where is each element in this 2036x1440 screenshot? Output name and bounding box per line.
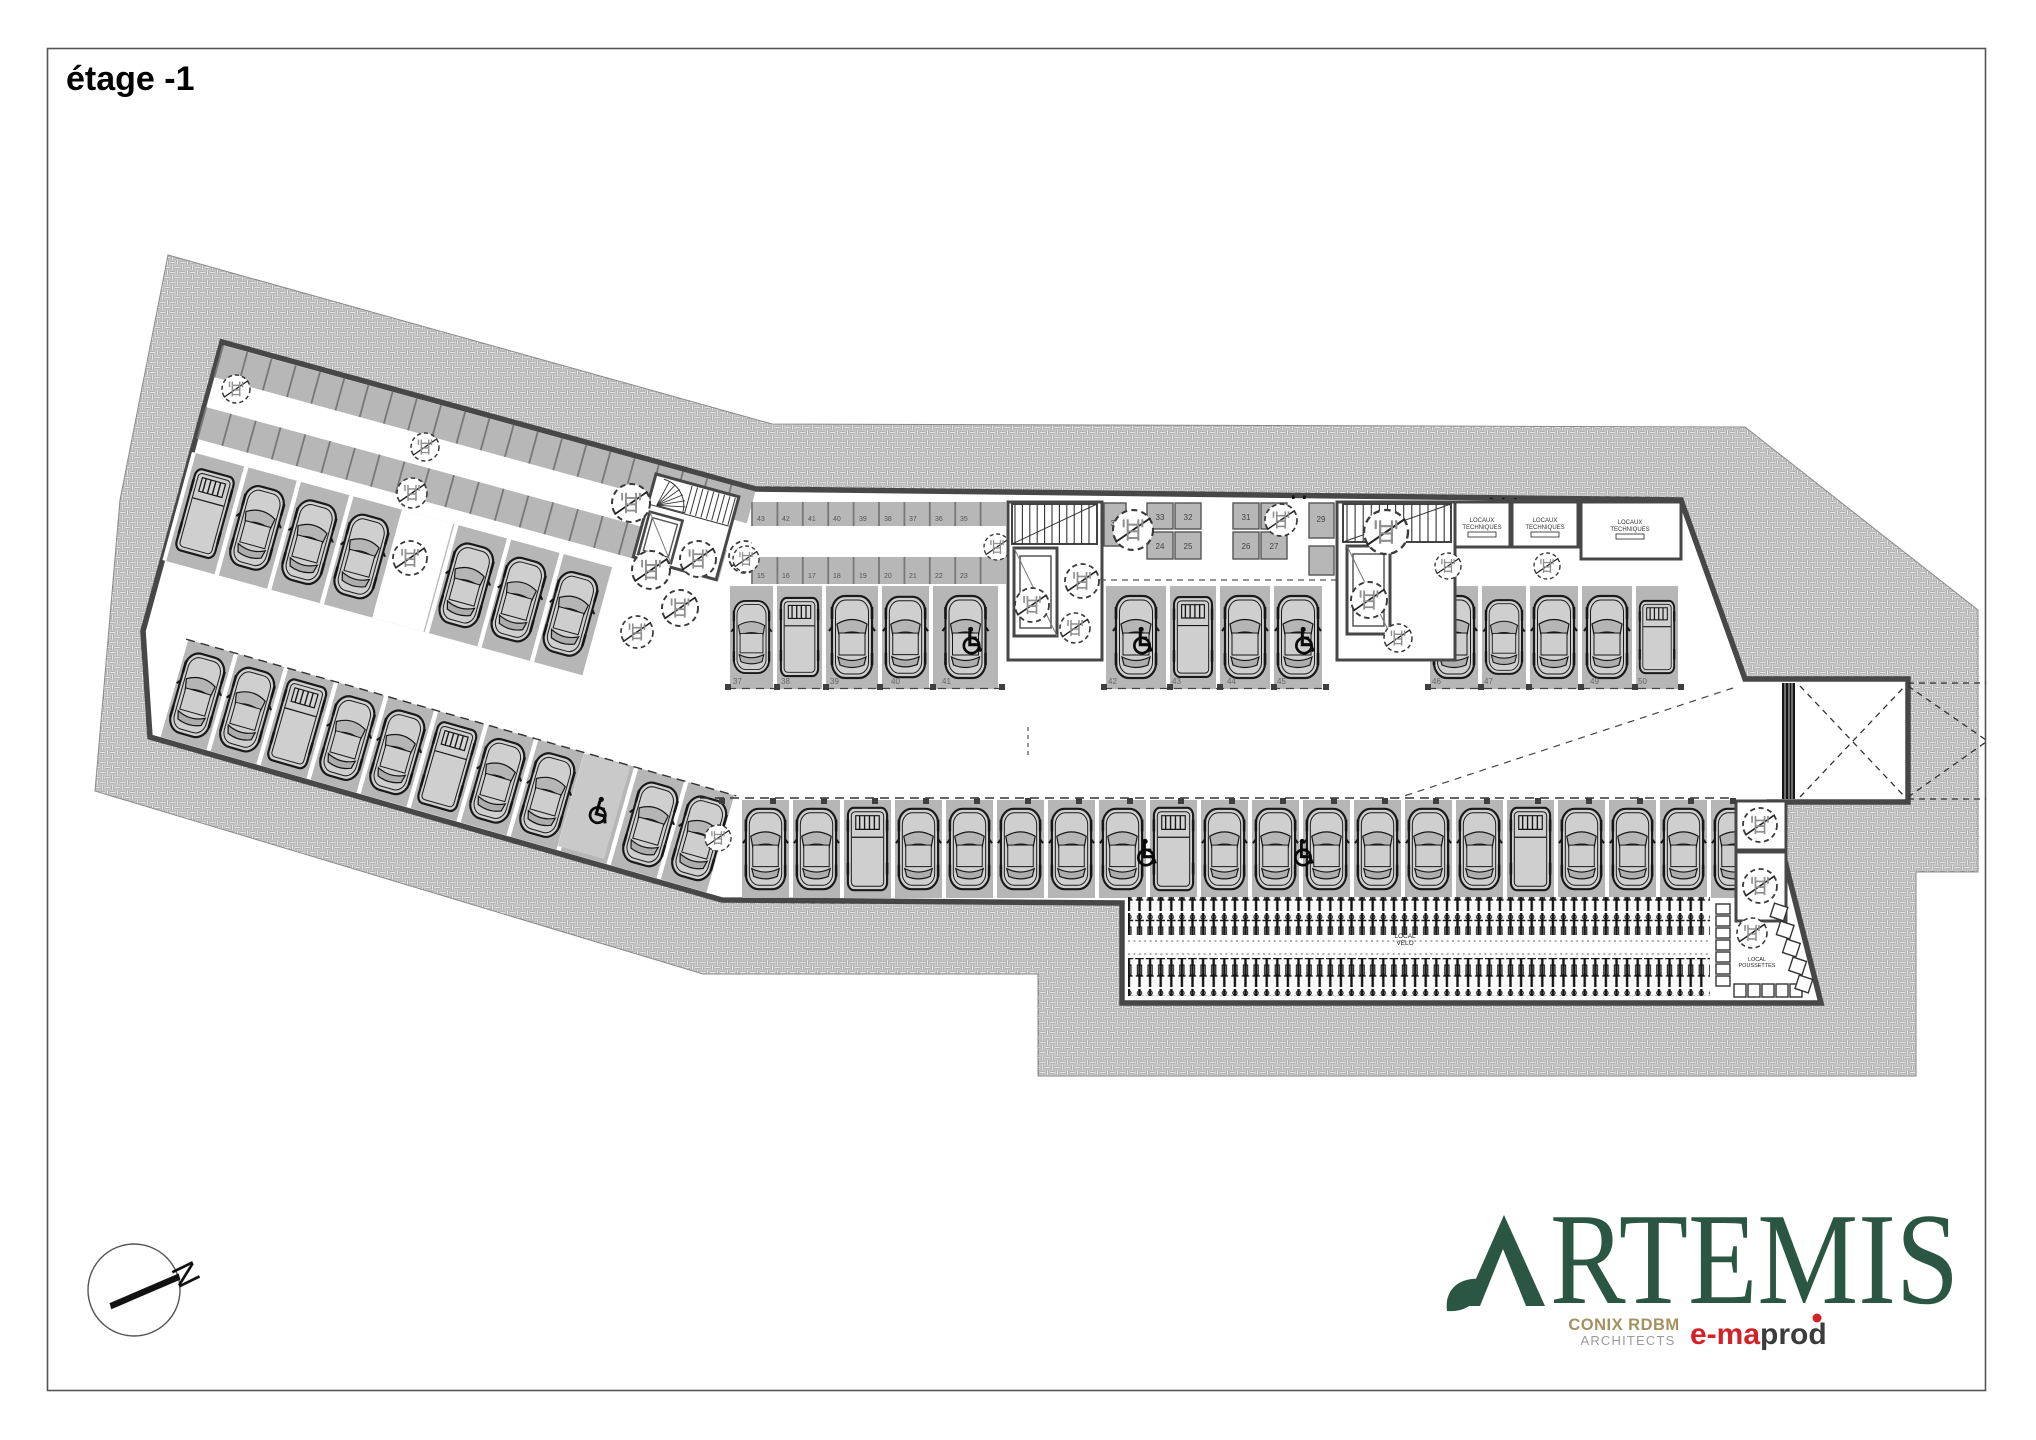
svg-text:TECHNIQUES: TECHNIQUES — [1462, 525, 1501, 531]
svg-text:37: 37 — [733, 677, 742, 686]
svg-text:27: 27 — [1270, 542, 1279, 551]
svg-text:RTEMIS: RTEMIS — [1550, 1187, 1959, 1332]
svg-text:TECHNIQUES: TECHNIQUES — [1525, 525, 1564, 531]
svg-text:45: 45 — [1277, 677, 1286, 686]
svg-text:49: 49 — [1590, 677, 1599, 686]
svg-text:37: 37 — [909, 516, 917, 523]
svg-text:31: 31 — [1242, 513, 1251, 522]
svg-text:18: 18 — [833, 573, 841, 580]
svg-text:POUSSETTES: POUSSETTES — [1739, 963, 1776, 969]
svg-text:e-maprod: e-maprod — [1690, 1318, 1827, 1351]
svg-text:33: 33 — [1156, 513, 1165, 522]
svg-text:40: 40 — [891, 677, 900, 686]
svg-text:32: 32 — [1184, 513, 1193, 522]
svg-text:16: 16 — [782, 573, 790, 580]
svg-text:LOCAUX: LOCAUX — [1618, 520, 1643, 526]
svg-text:LOCAUX: LOCAUX — [1533, 518, 1558, 524]
svg-text:LOCAL: LOCAL — [1394, 933, 1416, 940]
svg-text:41: 41 — [942, 677, 951, 686]
svg-text:41: 41 — [808, 516, 816, 523]
svg-text:44: 44 — [1227, 677, 1236, 686]
svg-text:20: 20 — [884, 573, 892, 580]
svg-text:ARCHITECTS: ARCHITECTS — [1580, 1333, 1675, 1348]
svg-text:étage -1: étage -1 — [66, 60, 195, 98]
svg-text:23: 23 — [960, 573, 968, 580]
svg-text:17: 17 — [808, 573, 816, 580]
svg-text:24: 24 — [1156, 542, 1165, 551]
svg-text:38: 38 — [884, 516, 892, 523]
svg-text:35: 35 — [960, 516, 968, 523]
svg-text:36: 36 — [935, 516, 943, 523]
svg-text:42: 42 — [1108, 677, 1117, 686]
svg-text:39: 39 — [830, 677, 839, 686]
svg-text:26: 26 — [1242, 542, 1251, 551]
svg-text:19: 19 — [859, 573, 867, 580]
svg-text:43: 43 — [1172, 677, 1181, 686]
svg-text:21: 21 — [909, 573, 917, 580]
svg-text:29: 29 — [1317, 515, 1326, 524]
svg-text:39: 39 — [859, 516, 867, 523]
svg-text:22: 22 — [935, 573, 943, 580]
svg-text:LOCAUX: LOCAUX — [1470, 518, 1495, 524]
svg-text:15: 15 — [757, 573, 765, 580]
svg-text:TECHNIQUES: TECHNIQUES — [1610, 527, 1649, 533]
svg-text:40: 40 — [833, 516, 841, 523]
svg-text:25: 25 — [1184, 542, 1193, 551]
svg-text:47: 47 — [1484, 677, 1493, 686]
svg-text:43: 43 — [757, 516, 765, 523]
svg-text:VELO: VELO — [1396, 940, 1413, 947]
svg-text:38: 38 — [781, 677, 790, 686]
svg-text:46: 46 — [1432, 677, 1441, 686]
svg-text:42: 42 — [782, 516, 790, 523]
svg-text:CONIX RDBM: CONIX RDBM — [1568, 1316, 1679, 1334]
svg-text:50: 50 — [1638, 677, 1647, 686]
